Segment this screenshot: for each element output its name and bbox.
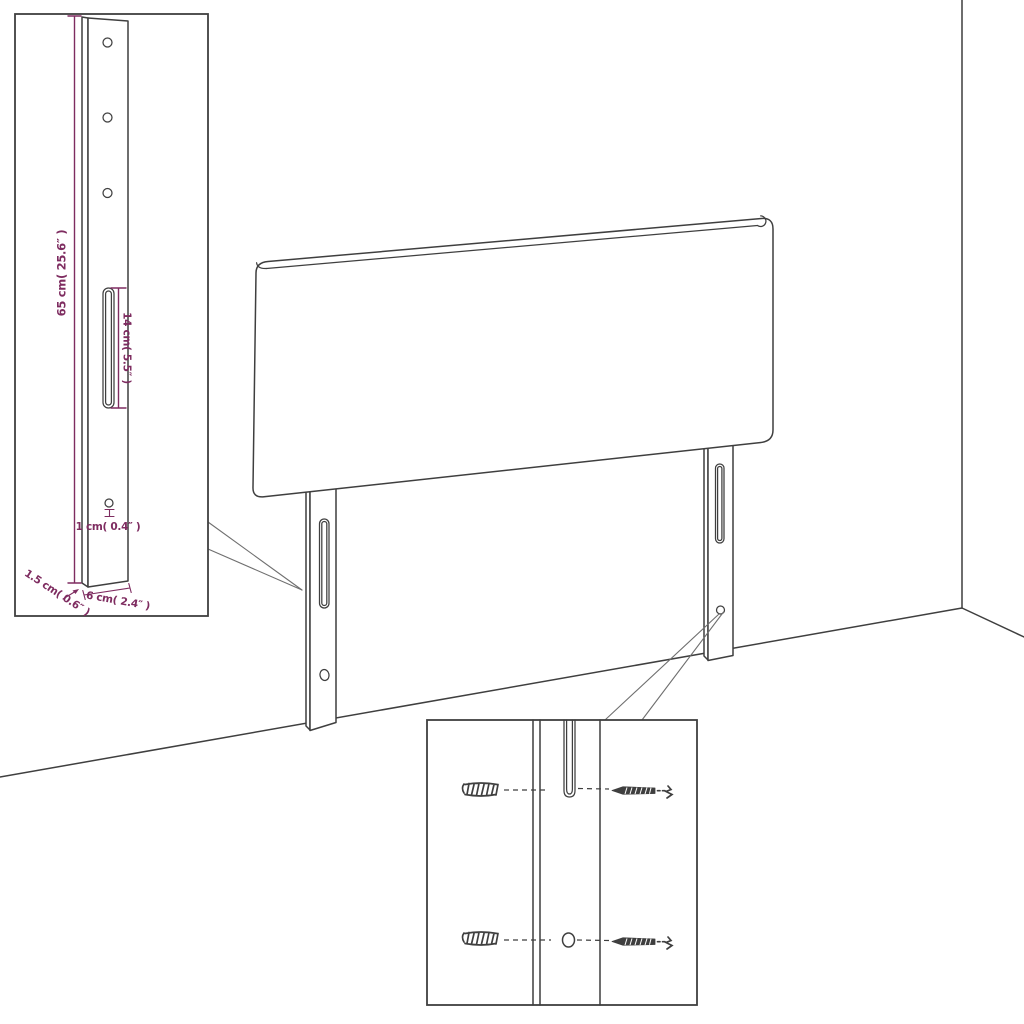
callout-line — [208, 522, 302, 590]
callout-line — [208, 549, 302, 590]
dimension-label-slot-length: 14 cm( 5.5″ ) — [121, 312, 133, 384]
dimension-label-height: 65 cm( 25.6″ ) — [55, 230, 69, 317]
detail-callout-left — [208, 522, 302, 590]
left-leg-slot — [320, 519, 330, 608]
headboard-right-leg — [704, 440, 733, 661]
leg-detail-inset: 65 cm( 25.6″ ) 14 cm( 5.5″ ) 1 cm( 0.4″ … — [15, 14, 208, 619]
headboard-assembly-diagram: 65 cm( 25.6″ ) 14 cm( 5.5″ ) 1 cm( 0.4″ … — [0, 0, 1024, 1024]
dimension-label-hole-diameter: 1 cm( 0.4″ ) — [76, 521, 141, 533]
mounting-inset-border — [427, 720, 697, 1005]
floor-line-right — [962, 608, 1024, 637]
mounting-detail-inset — [427, 720, 697, 1005]
bracket-slot — [103, 288, 114, 408]
callout-line — [642, 612, 724, 720]
headboard-panel-face — [253, 218, 773, 496]
bracket-side-face — [82, 17, 88, 587]
headboard-left-leg — [306, 482, 336, 731]
headboard-panel — [253, 216, 773, 497]
right-leg-slot — [716, 464, 725, 543]
